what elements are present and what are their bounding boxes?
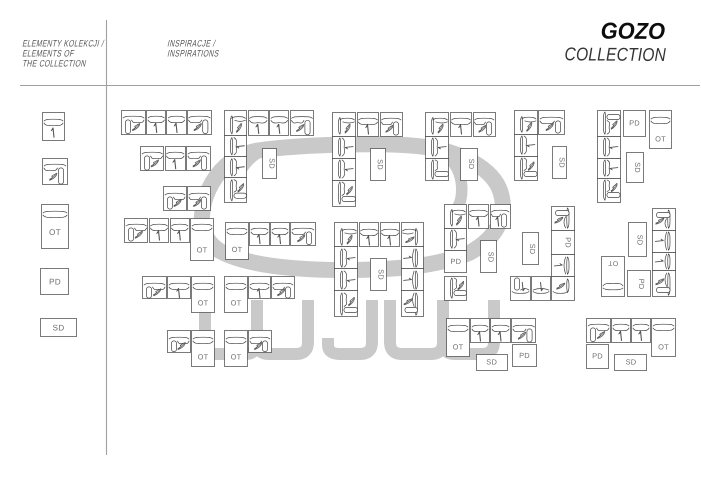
svg-text:SD: SD — [267, 158, 276, 169]
svg-text:SD: SD — [467, 159, 476, 170]
svg-text:OT: OT — [198, 352, 209, 361]
svg-text:THE COLLECTION: THE COLLECTION — [22, 58, 88, 69]
svg-text:PD: PD — [592, 351, 603, 360]
svg-text:OT: OT — [198, 298, 209, 307]
svg-text:OT: OT — [453, 342, 464, 351]
svg-text:OT: OT — [197, 245, 208, 254]
svg-text:SD: SD — [52, 323, 64, 332]
svg-text:OT: OT — [231, 352, 242, 361]
svg-text:SD: SD — [528, 244, 537, 255]
svg-text:OT: OT — [231, 298, 242, 307]
svg-text:PD: PD — [637, 279, 646, 290]
svg-text:SD: SD — [376, 159, 385, 170]
svg-text:OT: OT — [607, 259, 618, 266]
svg-text:SD: SD — [635, 235, 644, 246]
svg-text:SD: SD — [633, 162, 642, 173]
svg-text:OT: OT — [655, 134, 666, 143]
svg-text:SD: SD — [376, 269, 385, 280]
svg-text:SD: SD — [626, 357, 637, 366]
svg-text:PD: PD — [564, 237, 573, 248]
svg-text:SD: SD — [486, 357, 497, 366]
svg-text:SD: SD — [557, 157, 566, 168]
svg-text:COLLECTION: COLLECTION — [564, 43, 666, 65]
svg-text:SD: SD — [486, 252, 495, 263]
svg-text:PD: PD — [629, 118, 640, 127]
svg-text:OT: OT — [232, 245, 243, 254]
svg-text:OT: OT — [658, 342, 669, 351]
svg-text:PD: PD — [450, 257, 461, 266]
svg-text:INSPIRATIONS: INSPIRATIONS — [167, 48, 221, 59]
svg-text:GOZO: GOZO — [601, 18, 666, 44]
svg-text:OT: OT — [49, 228, 61, 237]
svg-text:PD: PD — [519, 351, 530, 360]
svg-text:PD: PD — [49, 277, 61, 286]
